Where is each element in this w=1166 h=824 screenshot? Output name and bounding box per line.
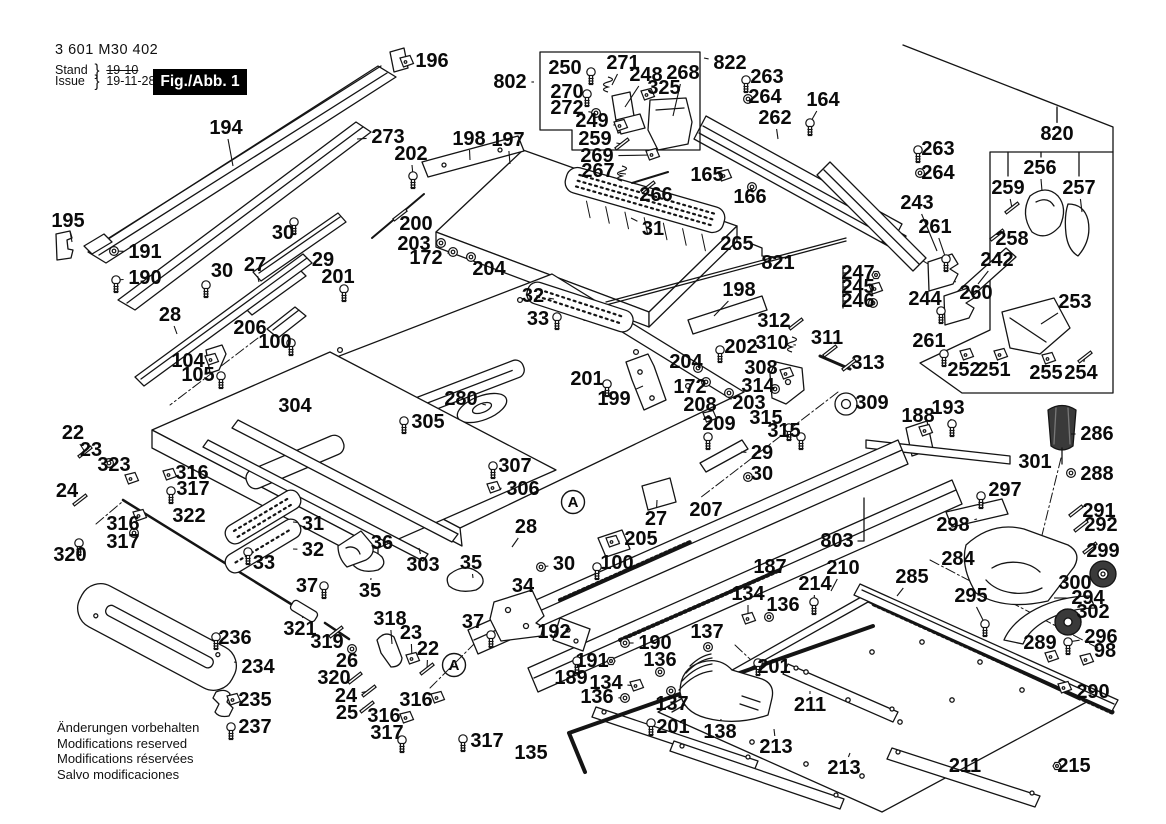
part-label-266: 266	[639, 184, 672, 206]
part-label-200: 200	[399, 213, 432, 235]
part-label-244: 244	[908, 288, 942, 310]
part-label-289: 289	[1023, 632, 1056, 654]
bracket-part-glyph	[431, 692, 445, 704]
part-label-135: 135	[514, 742, 547, 764]
part-label-298: 298	[936, 514, 969, 536]
part-label-28: 28	[515, 516, 537, 538]
screw-part-glyph	[409, 172, 417, 189]
part-label-265: 265	[720, 233, 753, 255]
part-label-297: 297	[988, 479, 1021, 501]
part-label-312: 312	[757, 310, 790, 332]
part-label-285: 285	[895, 566, 928, 588]
part-label-35: 35	[460, 552, 482, 574]
part-label-235: 235	[238, 689, 271, 711]
part-label-37: 37	[296, 575, 318, 597]
screw-part-glyph	[810, 598, 818, 615]
part-label-33: 33	[253, 552, 275, 574]
part-label-310: 310	[755, 332, 788, 354]
part-label-306: 306	[506, 478, 539, 500]
part-label-138: 138	[703, 721, 736, 743]
part-label-30: 30	[553, 553, 575, 575]
screw-part-glyph	[217, 372, 225, 389]
part-label-261: 261	[918, 216, 951, 238]
part-label-325: 325	[647, 77, 680, 99]
washer-part-glyph	[449, 248, 458, 257]
screw-part-glyph	[583, 90, 591, 107]
part-label-237: 237	[238, 716, 271, 738]
part-label-319: 319	[310, 631, 343, 653]
screw-part-glyph	[112, 276, 120, 293]
washer-part-glyph	[621, 694, 630, 703]
part-label-236: 236	[218, 627, 251, 649]
part-label-299: 299	[1086, 540, 1119, 562]
bracket-part-glyph	[1080, 654, 1094, 666]
part-label-292: 292	[1084, 514, 1117, 536]
screw-part-glyph	[981, 620, 989, 637]
part-label-821: 821	[761, 252, 794, 274]
part-label-803: 803	[820, 530, 853, 552]
part-label-204: 204	[669, 351, 703, 373]
leader-line-298	[974, 519, 977, 520]
part-label-25: 25	[336, 702, 358, 724]
part-label-209: 209	[702, 413, 735, 435]
part-label-316: 316	[399, 689, 432, 711]
part-label-30: 30	[751, 463, 773, 485]
leader-line-28	[174, 326, 177, 334]
part-label-201: 201	[570, 368, 603, 390]
part-label-305: 305	[411, 411, 444, 433]
part-label-190: 190	[128, 267, 161, 289]
bracket-part-glyph	[742, 613, 756, 625]
leader-line-273	[357, 138, 367, 139]
detail-marker-letter: A	[449, 657, 460, 674]
part-label-256: 256	[1023, 157, 1056, 179]
pin-part-glyph	[1005, 202, 1019, 214]
part-label-250: 250	[548, 57, 581, 79]
part-label-134: 134	[731, 583, 765, 605]
part-label-262: 262	[758, 107, 791, 129]
part-label-315: 315	[767, 420, 800, 442]
screw-part-glyph	[948, 420, 956, 437]
leader-line-28	[512, 538, 518, 547]
part-label-202: 202	[724, 336, 757, 358]
part-label-264: 264	[921, 162, 955, 184]
part-label-253: 253	[1058, 291, 1091, 313]
part-label-201: 201	[656, 716, 689, 738]
part-label-136: 136	[643, 649, 676, 671]
part-label-259: 259	[991, 177, 1024, 199]
screw-part-glyph	[716, 346, 724, 363]
part-label-27: 27	[645, 508, 667, 530]
part-label-191: 191	[128, 241, 161, 263]
part-label-105: 105	[181, 364, 214, 386]
part-label-100: 100	[258, 331, 291, 353]
part-label-34: 34	[512, 575, 535, 597]
washer-part-glyph	[704, 643, 713, 652]
screw-part-glyph	[704, 433, 712, 450]
part-label-98: 98	[1094, 640, 1116, 662]
part-label-197: 197	[491, 129, 524, 151]
part-label-284: 284	[941, 548, 975, 570]
part-label-213: 213	[759, 736, 792, 758]
part-label-211: 211	[949, 755, 981, 777]
parts-diagram-page: 3 601 M30 402 Stand } 19-10 Issue } 19-1…	[0, 0, 1166, 824]
part-label-286: 286	[1080, 423, 1113, 445]
leader-line-35	[473, 574, 474, 578]
part-label-31: 31	[642, 218, 664, 240]
part-label-317: 317	[370, 722, 403, 744]
part-label-211: 211	[794, 694, 826, 716]
part-label-309: 309	[855, 392, 888, 414]
leader-line-256	[1041, 179, 1042, 191]
screw-part-glyph	[1064, 638, 1072, 655]
part-label-213: 213	[827, 757, 860, 779]
part-label-290: 290	[1076, 681, 1109, 703]
part-label-280: 280	[444, 388, 477, 410]
part-label-30: 30	[211, 260, 233, 282]
part-label-22: 22	[417, 638, 439, 660]
part-label-24: 24	[56, 480, 79, 502]
part-label-252: 252	[947, 359, 980, 381]
part-label-165: 165	[690, 164, 723, 186]
detail-marker-letter: A	[568, 494, 579, 511]
pin-part-glyph	[789, 318, 803, 330]
part-label-195: 195	[51, 210, 84, 232]
part-label-307: 307	[498, 455, 531, 477]
part-label-295: 295	[954, 585, 987, 607]
part-label-317: 317	[470, 730, 503, 752]
part-label-100: 100	[600, 552, 633, 574]
part-label-37: 37	[462, 611, 484, 633]
part-label-136: 136	[580, 686, 613, 708]
part-label-35: 35	[359, 580, 381, 602]
screw-part-glyph	[806, 119, 814, 136]
part-label-32: 32	[522, 285, 544, 307]
part-label-137: 137	[655, 693, 688, 715]
part-label-202: 202	[394, 143, 427, 165]
part-label-288: 288	[1080, 463, 1113, 485]
part-label-214: 214	[798, 573, 832, 595]
screw-part-glyph	[320, 582, 328, 599]
part-label-822: 822	[713, 52, 746, 74]
leader-line-234	[234, 662, 237, 663]
screw-part-glyph	[202, 281, 210, 298]
leader-line-285	[897, 588, 903, 596]
pin-part-glyph	[615, 138, 629, 150]
part-label-207: 207	[689, 499, 722, 521]
part-label-193: 193	[931, 397, 964, 419]
part-label-243: 243	[900, 192, 933, 214]
part-label-251: 251	[977, 359, 1010, 381]
part-label-320: 320	[53, 544, 86, 566]
part-label-204: 204	[472, 258, 506, 280]
part-label-164: 164	[806, 89, 840, 111]
part-label-260: 260	[959, 282, 992, 304]
part-label-322: 322	[172, 505, 205, 527]
part-label-198: 198	[452, 128, 485, 150]
part-label-303: 303	[406, 554, 439, 576]
washer-part-glyph	[110, 247, 119, 256]
leader-line-267	[619, 173, 626, 174]
part-label-199: 199	[597, 388, 630, 410]
part-label-33: 33	[527, 308, 549, 330]
part-label-30: 30	[272, 222, 294, 244]
part-label-261: 261	[912, 330, 945, 352]
part-label-166: 166	[733, 186, 766, 208]
part-label-194: 194	[209, 117, 243, 139]
part-label-263: 263	[750, 66, 783, 88]
part-label-317: 317	[106, 531, 139, 553]
part-label-301: 301	[1018, 451, 1051, 473]
bracket-part-glyph	[630, 680, 644, 692]
pin-part-glyph	[362, 685, 376, 697]
part-label-172: 172	[673, 376, 706, 398]
part-label-802: 802	[493, 71, 526, 93]
part-label-246: 246	[841, 290, 874, 312]
part-label-242: 242	[980, 249, 1013, 271]
washer-part-glyph	[1067, 469, 1076, 478]
part-label-136: 136	[766, 594, 799, 616]
part-label-254: 254	[1064, 362, 1098, 384]
part-label-264: 264	[748, 86, 782, 108]
leader-line-262	[777, 129, 778, 139]
part-label-29: 29	[751, 442, 773, 464]
screw-part-glyph	[587, 68, 595, 85]
washer-part-glyph	[621, 639, 630, 648]
leader-line-198	[470, 150, 471, 160]
part-label-31: 31	[302, 513, 324, 535]
exploded-view-figure: 1941951911901962732021981978022502712482…	[0, 0, 1166, 824]
part-label-187: 187	[753, 556, 786, 578]
part-label-201: 201	[321, 266, 354, 288]
part-label-198: 198	[722, 279, 755, 301]
screw-part-glyph	[227, 723, 235, 740]
part-label-28: 28	[159, 304, 181, 326]
part-label-255: 255	[1029, 362, 1062, 384]
part-label-820: 820	[1040, 123, 1073, 145]
part-label-188: 188	[901, 405, 934, 427]
part-label-302: 302	[1076, 601, 1109, 623]
part-label-192: 192	[537, 621, 570, 643]
washer-part-glyph	[537, 563, 546, 572]
part-label-137: 137	[690, 621, 723, 643]
leader-line-822	[704, 58, 709, 59]
part-label-172: 172	[409, 247, 442, 269]
screw-part-glyph	[459, 735, 467, 752]
part-label-27: 27	[244, 254, 266, 276]
part-label-258: 258	[995, 228, 1028, 250]
leader-line-210	[831, 579, 837, 591]
part-label-36: 36	[371, 532, 393, 554]
part-label-311: 311	[811, 327, 843, 349]
screw-part-glyph	[167, 487, 175, 504]
part-label-323: 323	[97, 454, 130, 476]
part-label-267: 267	[581, 160, 614, 182]
part-label-215: 215	[1057, 755, 1090, 777]
part-label-257: 257	[1062, 177, 1095, 199]
part-label-205: 205	[624, 528, 657, 550]
part-label-32: 32	[302, 539, 324, 561]
part-label-313: 313	[851, 352, 884, 374]
part-label-234: 234	[241, 656, 275, 678]
part-label-317: 317	[176, 478, 209, 500]
part-label-304: 304	[278, 395, 312, 417]
part-label-201: 201	[757, 656, 790, 678]
pin-part-glyph	[1069, 505, 1083, 517]
spring-part-glyph	[604, 77, 613, 92]
part-label-263: 263	[921, 138, 954, 160]
part-label-196: 196	[415, 50, 448, 72]
